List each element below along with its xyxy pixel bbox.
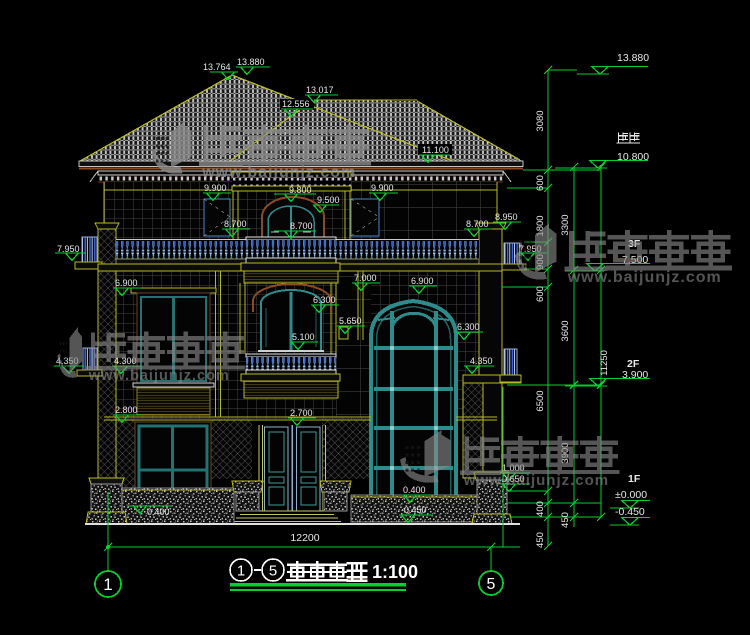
svg-text:2.700: 2.700 (290, 408, 313, 418)
svg-text:5: 5 (487, 576, 496, 593)
svg-text:8.700: 8.700 (224, 219, 247, 229)
svg-text:5: 5 (269, 563, 277, 580)
svg-text:5.650: 5.650 (339, 316, 362, 326)
svg-text:6.900: 6.900 (115, 278, 138, 288)
svg-text:11250: 11250 (599, 350, 610, 376)
svg-text:13.764: 13.764 (203, 62, 231, 72)
svg-text:11.100: 11.100 (422, 145, 449, 155)
svg-text:6500: 6500 (535, 390, 546, 411)
svg-text:8.700: 8.700 (290, 221, 313, 231)
svg-text:12.556: 12.556 (282, 99, 310, 109)
svg-text:4.350: 4.350 (470, 356, 493, 366)
svg-text:13.017: 13.017 (306, 85, 334, 95)
svg-text:3080: 3080 (535, 110, 546, 131)
svg-text:8.700: 8.700 (466, 219, 489, 229)
svg-text:1: 1 (237, 563, 245, 580)
svg-text:1F: 1F (628, 473, 641, 485)
svg-text:9.900: 9.900 (204, 183, 227, 193)
svg-text:3600: 3600 (560, 320, 571, 341)
svg-text:8.950: 8.950 (495, 212, 518, 222)
svg-text:-0.450: -0.450 (401, 505, 427, 515)
svg-text:400: 400 (535, 501, 546, 517)
svg-text:9.500: 9.500 (317, 195, 340, 205)
svg-text:±0.000: ±0.000 (615, 489, 647, 501)
svg-text:www.baijunjz.com: www.baijunjz.com (463, 472, 609, 489)
svg-text:www.baijunjz.com: www.baijunjz.com (567, 269, 722, 286)
svg-text:6.900: 6.900 (411, 276, 434, 286)
svg-text:0.400: 0.400 (147, 507, 170, 517)
svg-text:www.baijunjz.com: www.baijunjz.com (201, 164, 356, 181)
svg-text:5.100: 5.100 (292, 332, 315, 342)
svg-text:9.900: 9.900 (371, 183, 394, 193)
svg-text:600: 600 (535, 286, 546, 302)
svg-text:7.000: 7.000 (354, 273, 377, 283)
svg-text:13.880: 13.880 (617, 52, 649, 64)
svg-text:www.baijunjz.com: www.baijunjz.com (88, 368, 230, 384)
svg-text:0.400: 0.400 (403, 485, 426, 495)
svg-text:3.900: 3.900 (622, 369, 648, 381)
svg-text:1:100: 1:100 (372, 562, 418, 582)
svg-text:450: 450 (560, 512, 571, 528)
svg-text:6.300: 6.300 (457, 322, 480, 332)
svg-text:1: 1 (103, 575, 112, 594)
svg-text:10.800: 10.800 (617, 151, 649, 163)
svg-text:13.880: 13.880 (237, 57, 265, 67)
svg-text:6.300: 6.300 (313, 295, 336, 305)
svg-text:450: 450 (535, 532, 546, 548)
svg-text:600: 600 (535, 175, 546, 191)
svg-text:2.800: 2.800 (115, 405, 138, 415)
svg-text:12200: 12200 (290, 532, 319, 544)
svg-text:-0.450: -0.450 (615, 506, 645, 518)
